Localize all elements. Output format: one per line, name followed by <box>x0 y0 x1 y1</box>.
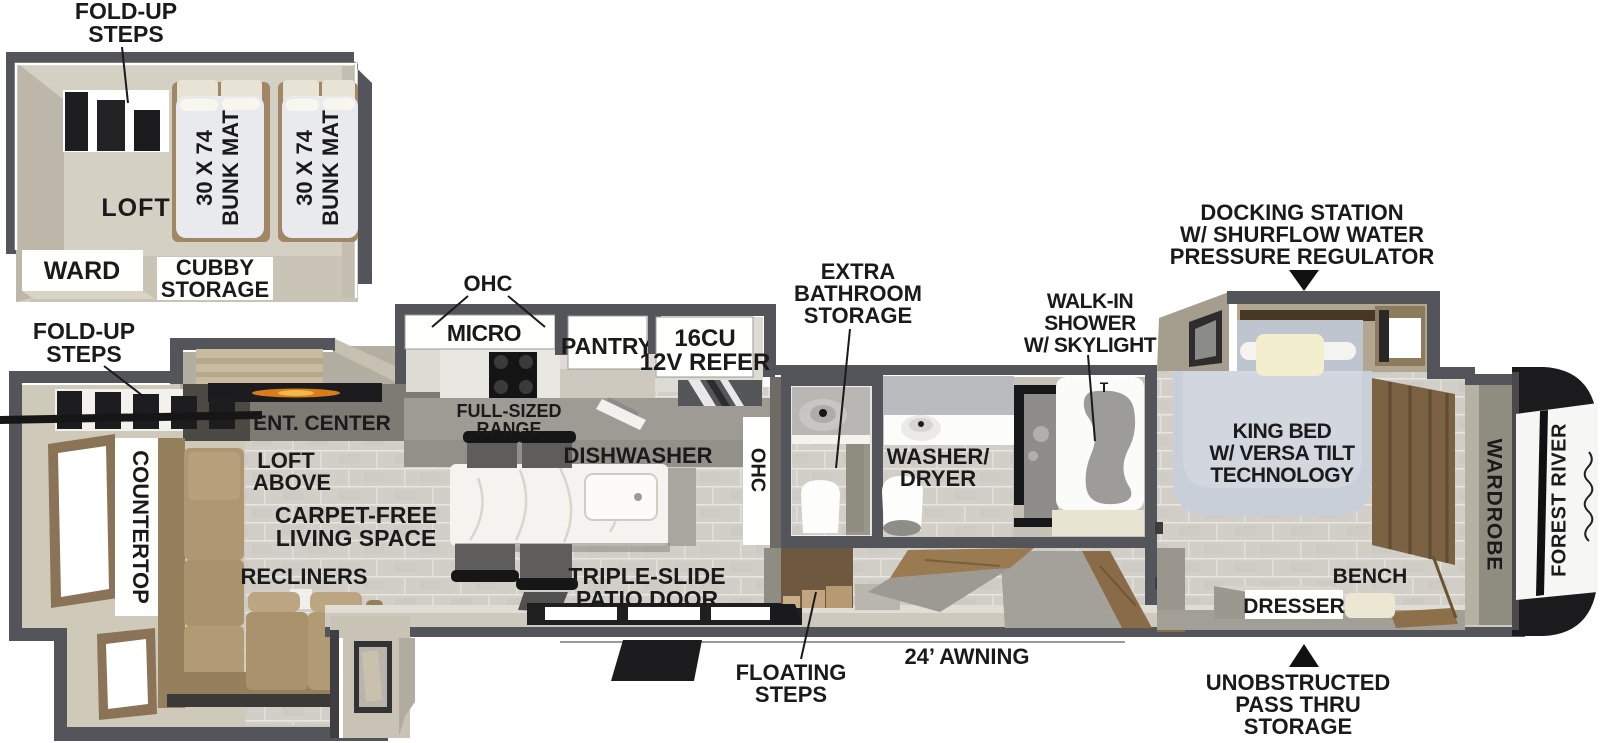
svg-text:RECLINERS: RECLINERS <box>240 564 367 589</box>
svg-text:ENT. CENTER: ENT. CENTER <box>253 412 391 435</box>
svg-text:FOLD-UPSTEPS: FOLD-UPSTEPS <box>33 318 135 367</box>
svg-text:FOLD-UPSTEPS: FOLD-UPSTEPS <box>75 0 177 47</box>
svg-text:DRESSER: DRESSER <box>1243 595 1345 618</box>
svg-text:WASHER/DRYER: WASHER/DRYER <box>887 444 990 491</box>
svg-text:CARPET-FREELIVING SPACE: CARPET-FREELIVING SPACE <box>275 502 437 551</box>
svg-text:DISHWASHER: DISHWASHER <box>563 443 712 468</box>
svg-text:T: T <box>1100 379 1109 395</box>
svg-text:OHC: OHC <box>464 271 513 296</box>
svg-text:OHC: OHC <box>747 448 769 492</box>
svg-text:CUBBYSTORAGE: CUBBYSTORAGE <box>161 255 269 302</box>
svg-text:WARDROBE: WARDROBE <box>1482 439 1505 572</box>
svg-text:WARD: WARD <box>44 257 120 285</box>
svg-text:TRIPLE-SLIDEPATIO DOOR: TRIPLE-SLIDEPATIO DOOR <box>568 563 725 612</box>
svg-text:MICRO: MICRO <box>447 320 521 346</box>
svg-text:FOREST RIVER: FOREST RIVER <box>1548 423 1570 577</box>
svg-text:DOCKING STATIONW/ SHURFLOW WAT: DOCKING STATIONW/ SHURFLOW WATERPRESSURE… <box>1170 200 1435 269</box>
svg-text:LOFT: LOFT <box>101 194 170 222</box>
svg-text:COUNTERTOP: COUNTERTOP <box>128 450 153 604</box>
svg-text:24’ AWNING: 24’ AWNING <box>904 644 1029 669</box>
svg-text:BENCH: BENCH <box>1333 565 1408 588</box>
